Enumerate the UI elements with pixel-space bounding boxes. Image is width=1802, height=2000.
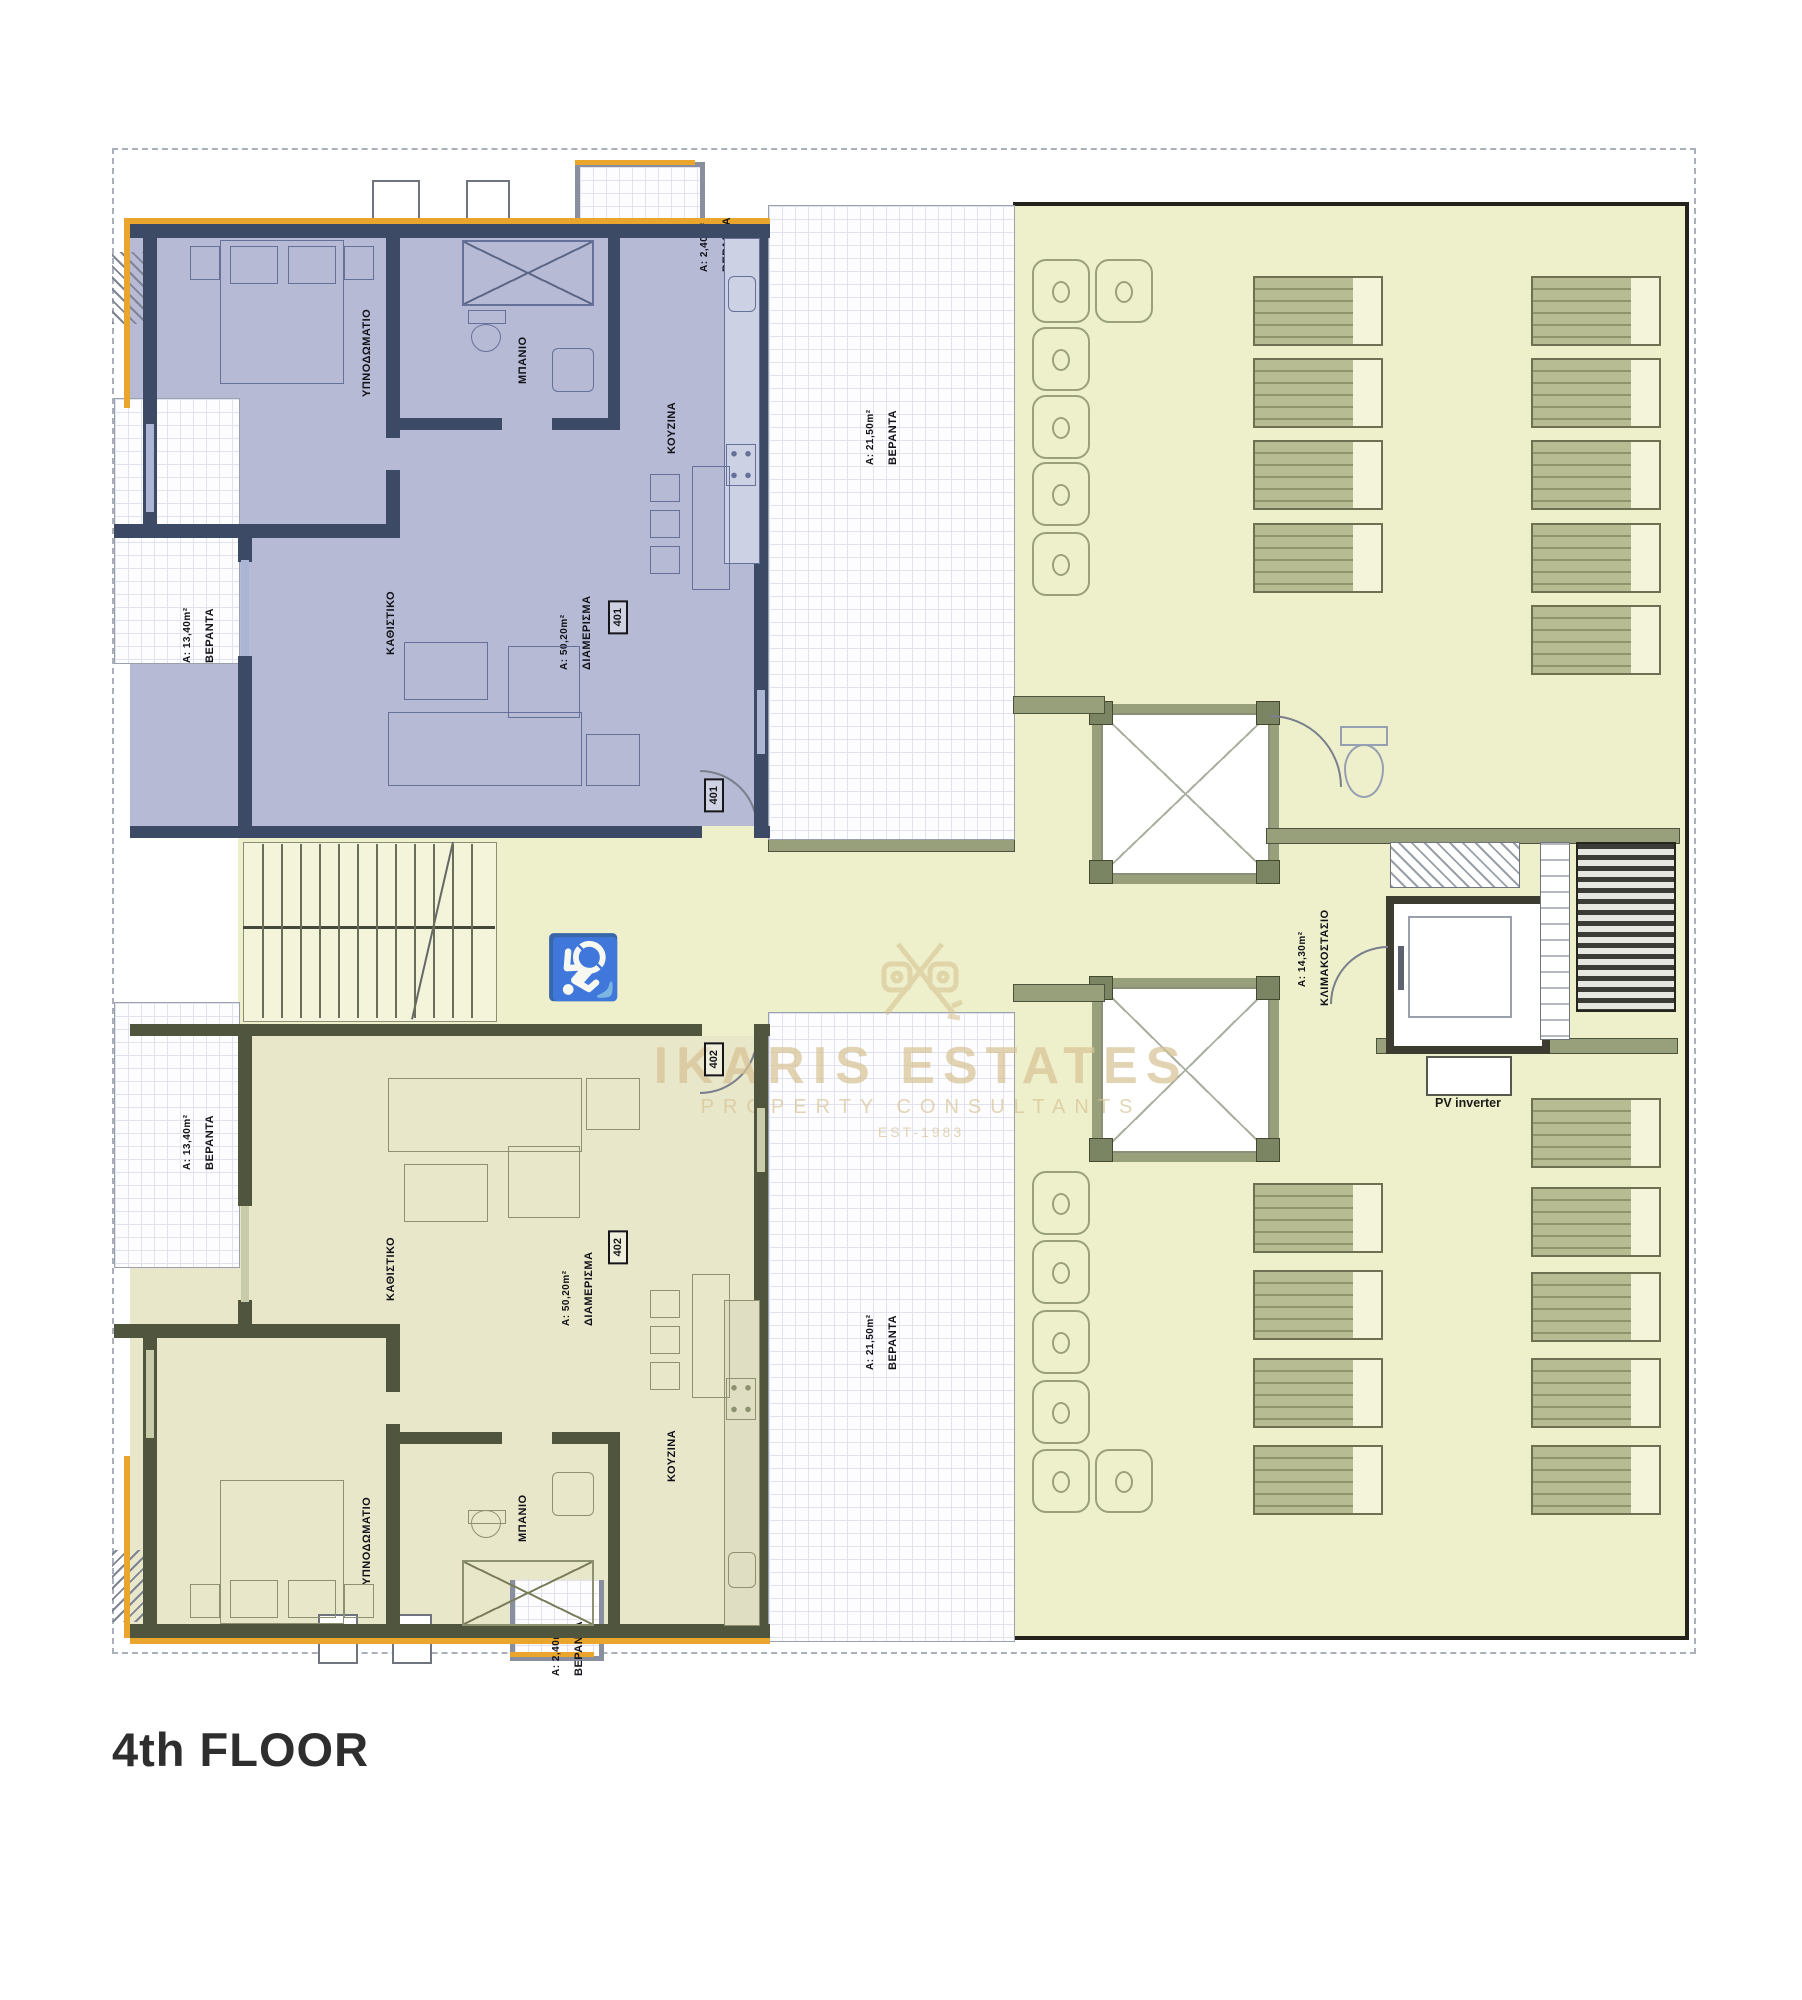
window-glazing	[146, 424, 154, 512]
planter	[1032, 1240, 1090, 1304]
sun-lounger	[1531, 605, 1635, 675]
wall	[238, 656, 252, 838]
sun-lounger	[1531, 358, 1635, 428]
window-glazing	[757, 690, 765, 754]
furniture	[344, 246, 374, 280]
sun-lounger-pillow	[1353, 1445, 1383, 1515]
furniture	[650, 1290, 680, 1318]
toilet-tank	[1340, 726, 1388, 746]
furniture	[692, 1274, 730, 1398]
planter	[1032, 259, 1090, 323]
planter-plant	[1052, 281, 1070, 303]
wall	[552, 418, 620, 430]
furniture	[388, 1078, 582, 1152]
planter-plant	[1052, 1332, 1070, 1354]
furniture	[650, 546, 680, 574]
shower	[462, 1560, 594, 1626]
wall	[754, 1024, 770, 1036]
sun-lounger-pillow	[1631, 605, 1661, 675]
wall	[130, 826, 702, 838]
apartment-402-number-box: 402	[608, 1230, 628, 1264]
wall	[386, 1424, 400, 1624]
label-kitchen-402: ΚΟΥΖΙΝΑ	[667, 1412, 678, 1482]
sun-lounger	[1531, 1272, 1635, 1342]
wall-post	[1089, 860, 1113, 884]
wall-post	[1256, 860, 1280, 884]
stair-step	[395, 844, 397, 1018]
label-terrace-401: ΒΕΡΑΝΤΑ	[888, 380, 899, 465]
stair-step	[300, 844, 302, 1018]
planter	[1032, 1449, 1090, 1513]
wall	[130, 224, 770, 238]
furniture	[190, 246, 220, 280]
wheelchair-accessibility-icon: ♿	[545, 930, 622, 1003]
wall-post	[1256, 976, 1280, 1000]
wall	[386, 238, 400, 438]
furniture	[650, 1362, 680, 1390]
wall	[130, 1024, 702, 1036]
sun-lounger-pillow	[1353, 1270, 1383, 1340]
wall	[238, 1300, 252, 1324]
wall	[386, 1324, 400, 1392]
sun-lounger	[1531, 1358, 1635, 1428]
sun-lounger-pillow	[1631, 440, 1661, 510]
planter	[1032, 532, 1090, 596]
accent-edge	[124, 1456, 130, 1638]
sun-lounger	[1253, 358, 1357, 428]
planter-plant	[1052, 484, 1070, 506]
toilet-tank	[468, 310, 506, 324]
stove	[726, 444, 756, 486]
terrace-wall-top	[1013, 202, 1689, 206]
sun-lounger	[1531, 1187, 1635, 1257]
stair-step	[262, 844, 264, 1018]
label-veranda-402: ΒΕΡΑΝΤΑ	[205, 1085, 216, 1170]
label-living-402: ΚΑΘΙΣΤΙΚΟ	[386, 1206, 397, 1301]
furniture	[388, 712, 582, 786]
watermark-tagline: PROPERTY CONSULTANTS	[601, 1096, 1241, 1119]
sink	[728, 1552, 756, 1588]
planter-plant	[1052, 1402, 1070, 1424]
label-veranda-401: ΒΕΡΑΝΤΑ	[205, 578, 216, 663]
sun-lounger-pillow	[1353, 1183, 1383, 1253]
furniture	[586, 1078, 640, 1130]
void-hatch	[1390, 842, 1520, 888]
planter	[1095, 259, 1153, 323]
label-bedroom-401: ΥΠΝΟΔΩΜΑΤΙΟ	[362, 282, 373, 397]
sun-lounger	[1253, 276, 1357, 346]
wall	[130, 1624, 770, 1638]
planter-plant	[1052, 349, 1070, 371]
window-glazing	[241, 560, 249, 656]
planter-plant	[1052, 554, 1070, 576]
watermark-est: EST-1983	[601, 1124, 1241, 1140]
wall-post	[1256, 1138, 1280, 1162]
stair-step	[281, 844, 283, 1018]
sun-lounger-pillow	[1631, 1098, 1661, 1168]
label-kitchen-401: ΚΟΥΖΙΝΑ	[667, 384, 678, 454]
bed-pillow	[288, 246, 336, 284]
wall	[114, 524, 392, 538]
sink	[728, 276, 756, 312]
side-veranda-402	[114, 1002, 240, 1268]
furniture	[508, 1146, 580, 1218]
stair-step	[471, 844, 473, 1018]
planter	[1032, 395, 1090, 459]
planter	[1032, 1171, 1090, 1235]
louvre-grille	[1576, 842, 1676, 1012]
label-bathroom-402: ΜΠΑΝΙΟ	[518, 1478, 529, 1542]
wall	[392, 1432, 502, 1444]
service-shaft	[1540, 842, 1570, 1040]
stair-step	[433, 844, 435, 1018]
sun-lounger-pillow	[1631, 1272, 1661, 1342]
watermark-name: IKARIS ESTATES	[601, 1036, 1241, 1096]
furniture	[650, 1326, 680, 1354]
door-opening-402	[700, 1024, 756, 1036]
stair-step	[338, 844, 340, 1018]
sun-lounger	[1253, 1270, 1357, 1340]
planter	[1032, 1310, 1090, 1374]
pv-inverter-label: PV inverter	[1398, 1096, 1538, 1110]
label-bedroom-402: ΥΠΝΟΔΩΜΑΤΙΟ	[362, 1470, 373, 1585]
machine-room-door	[1398, 946, 1404, 990]
sun-lounger	[1531, 1098, 1635, 1168]
sun-lounger	[1531, 440, 1635, 510]
sun-lounger	[1253, 1445, 1357, 1515]
label-apartment-402: ΔΙΑΜΕΡΙΣΜΑ	[584, 1196, 595, 1326]
label-apartment-401: ΔΙΑΜΕΡΙΣΜΑ	[582, 540, 593, 670]
door-number-401: 401	[704, 778, 724, 812]
label-veranda-401-area: Α: 13,40m²	[183, 578, 193, 663]
bed-pillow	[288, 1580, 336, 1618]
pv-inverter-unit	[1426, 1056, 1512, 1096]
stair-step	[376, 844, 378, 1018]
planter-plant	[1052, 1262, 1070, 1284]
label-veranda-402-area: Α: 13,40m²	[183, 1085, 193, 1170]
accent-edge	[130, 1638, 770, 1644]
furniture	[586, 734, 640, 786]
stair-step	[452, 844, 454, 1018]
floor-plan-canvas: ♿ PV inverter IKARIS ESTATES PR	[0, 0, 1802, 2000]
stair-step	[357, 844, 359, 1018]
sun-lounger-pillow	[1353, 276, 1383, 346]
planter	[1095, 1449, 1153, 1513]
furniture	[404, 1164, 488, 1222]
sun-lounger-pillow	[1631, 1445, 1661, 1515]
sun-lounger	[1531, 523, 1635, 593]
sun-lounger-pillow	[1353, 1358, 1383, 1428]
open-veranda-401	[768, 205, 1015, 840]
door-number-402: 402	[704, 1042, 724, 1076]
label-terrace-402-area: Α: 21,50m²	[866, 1285, 876, 1370]
sink	[552, 1472, 594, 1516]
corridor-wall-top	[768, 838, 1015, 852]
apartment-401-number-box: 401	[608, 600, 628, 634]
wall	[238, 538, 252, 562]
wall-post	[1089, 1138, 1113, 1162]
furniture	[404, 642, 488, 700]
sun-lounger	[1253, 1358, 1357, 1428]
sink	[552, 348, 594, 392]
wall	[608, 238, 620, 430]
shower	[462, 240, 594, 306]
watermark-logo-icon	[868, 930, 972, 1034]
terrace-wall-bottom	[1013, 1636, 1689, 1640]
bed-pillow	[230, 246, 278, 284]
page-title: 4th FLOOR	[112, 1722, 369, 1777]
sun-lounger-pillow	[1353, 358, 1383, 428]
furniture	[344, 1584, 374, 1618]
label-terrace-402: ΒΕΡΑΝΤΑ	[888, 1285, 899, 1370]
window-glazing	[241, 1206, 249, 1302]
wall	[114, 1324, 392, 1338]
sun-lounger	[1253, 1183, 1357, 1253]
planter-plant	[1052, 1471, 1070, 1493]
sun-lounger-pillow	[1631, 1358, 1661, 1428]
sun-lounger-pillow	[1353, 440, 1383, 510]
label-bathroom-401: ΜΠΑΝΙΟ	[518, 320, 529, 384]
wall	[238, 1024, 252, 1206]
furniture	[650, 474, 680, 502]
wall	[608, 1432, 620, 1624]
core-wall	[1013, 984, 1105, 1002]
terrace-wall-right	[1685, 202, 1689, 1640]
sun-lounger-pillow	[1631, 276, 1661, 346]
planter	[1032, 327, 1090, 391]
furniture	[692, 466, 730, 590]
sun-lounger-pillow	[1631, 358, 1661, 428]
planter	[1032, 1380, 1090, 1444]
furniture	[650, 510, 680, 538]
planter	[1032, 462, 1090, 526]
label-small-veranda-401-area: Α: 2,40m²	[700, 172, 710, 272]
label-stairwell-area: Α: 14,30m²	[1298, 892, 1308, 987]
sun-lounger	[1253, 440, 1357, 510]
stair-step	[319, 844, 321, 1018]
wall	[552, 1432, 620, 1444]
window-glazing	[146, 1350, 154, 1438]
stove	[726, 1378, 756, 1420]
label-living-401: ΚΑΘΙΣΤΙΚΟ	[386, 560, 397, 655]
core-wall	[1013, 696, 1105, 714]
planter-plant	[1052, 417, 1070, 439]
sun-lounger	[1531, 1445, 1635, 1515]
furniture	[508, 646, 580, 718]
planter-plant	[1052, 1193, 1070, 1215]
label-terrace-401-area: Α: 21,50m²	[866, 380, 876, 465]
wall	[392, 418, 502, 430]
accent-edge	[124, 218, 130, 408]
window-glazing	[757, 1108, 765, 1172]
wall	[754, 826, 770, 838]
sun-lounger-pillow	[1631, 523, 1661, 593]
planter-plant	[1115, 1471, 1133, 1493]
stair-step	[414, 844, 416, 1018]
elevator-car	[1408, 916, 1512, 1018]
accent-edge	[575, 160, 695, 165]
bed-pillow	[230, 1580, 278, 1618]
furniture	[190, 1584, 220, 1618]
sun-lounger-pillow	[1353, 523, 1383, 593]
sun-lounger	[1531, 276, 1635, 346]
sun-lounger-pillow	[1631, 1187, 1661, 1257]
light-well	[1101, 713, 1270, 875]
label-stairwell: ΚΛΙΜΑΚΟΣΤΑΣΙΟ	[1320, 876, 1331, 1006]
sun-lounger	[1253, 523, 1357, 593]
wall	[386, 470, 400, 538]
planter-plant	[1115, 281, 1133, 303]
